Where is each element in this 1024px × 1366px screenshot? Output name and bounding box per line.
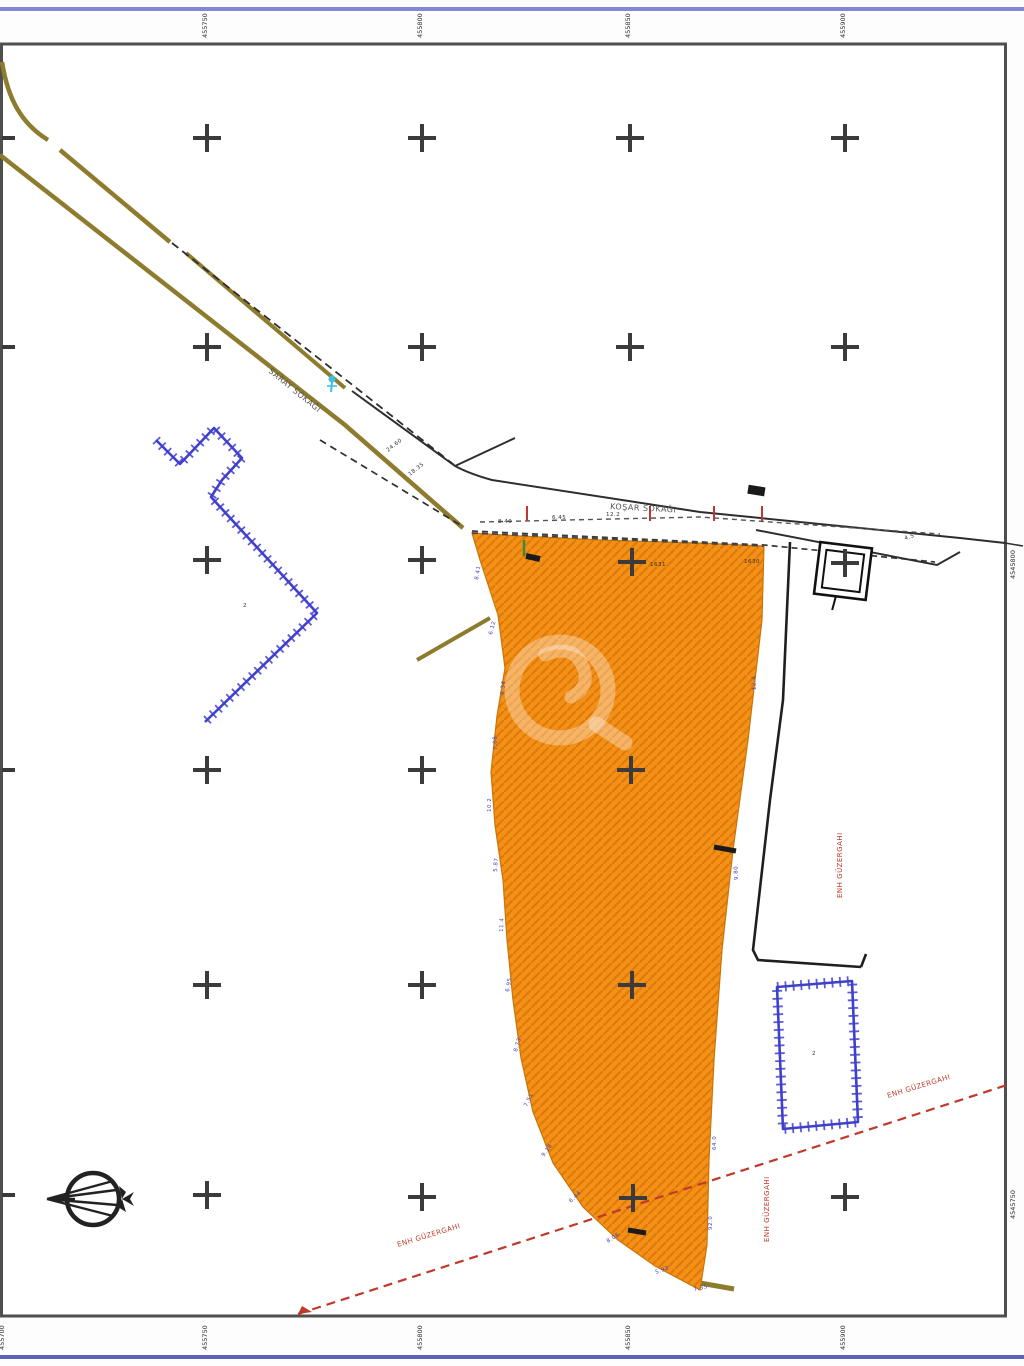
dimension-label: 2	[812, 1051, 816, 1057]
coordinate-tick: 455800	[416, 13, 424, 38]
dimension-label: 6.45	[552, 515, 566, 521]
dimension-label: 12.2	[606, 512, 620, 518]
cadastral-map: 4557504558004558504559004557004557504558…	[0, 0, 1024, 1366]
dimension-label: 1631	[650, 562, 666, 568]
measurement-label: 92.0	[708, 1216, 714, 1230]
embankment-rectangle	[777, 981, 858, 1129]
coordinate-tick: 455850	[624, 13, 632, 38]
coordinate-tick: 455750	[201, 13, 209, 38]
coordinate-tick: 455700	[0, 1325, 6, 1350]
measurement-label: 12.4	[751, 676, 758, 691]
measurement-label: 11.4	[499, 918, 505, 932]
coordinate-tick: 455750	[201, 1325, 209, 1350]
measurement-label: 9.80	[734, 866, 740, 880]
measurement-label: 5.87	[493, 858, 500, 873]
measurement-label: 10.2	[487, 798, 493, 812]
coordinate-tick: 455850	[624, 1325, 632, 1350]
measurement-label: 7.08	[493, 736, 499, 750]
coordinate-tick: 455800	[416, 1325, 424, 1350]
dimension-label: 1630	[744, 559, 760, 565]
measurement-label: 64.0	[712, 1136, 718, 1150]
plan-sheet: 4557504558004558504559004557004557504558…	[0, 0, 1024, 1366]
measurement-label: 9.34	[500, 680, 507, 695]
coordinate-tick: 455900	[839, 1325, 847, 1350]
route-label: ENH GÜZERGAHI	[835, 832, 844, 898]
coordinate-tick: 455900	[839, 13, 847, 38]
dimension-label: 2	[243, 603, 247, 609]
dimension-label: 8.40	[498, 519, 512, 525]
route-label: ENH GÜZERGAHI	[762, 1176, 771, 1242]
coordinate-tick: 4545750	[1009, 1190, 1017, 1219]
coordinate-tick: 4545800	[1009, 550, 1017, 579]
